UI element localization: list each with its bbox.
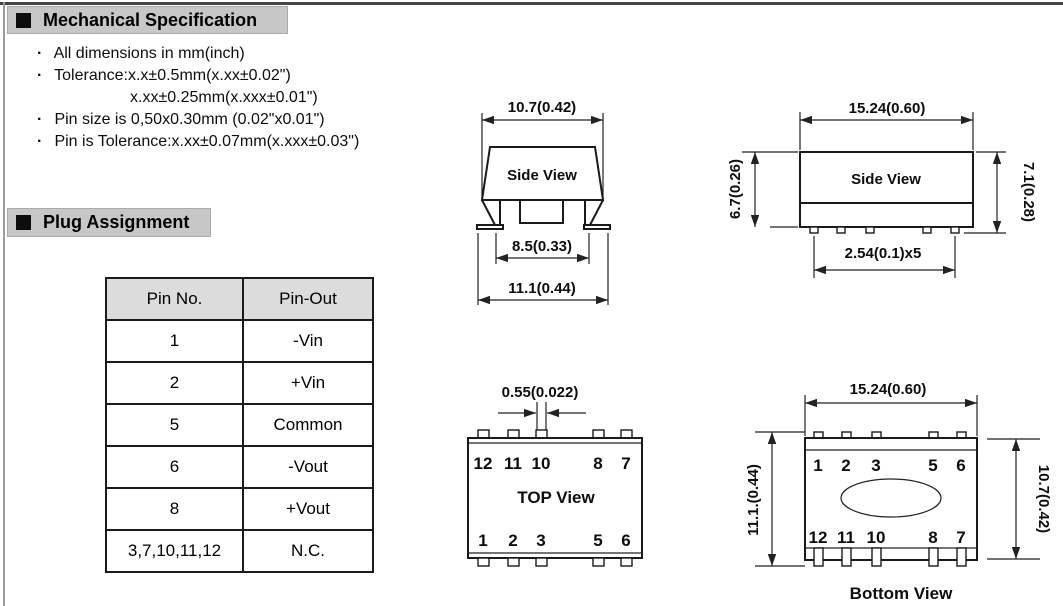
bullet-icon: · xyxy=(37,133,50,151)
svg-text:10: 10 xyxy=(867,528,886,547)
pin-assignment-table: Pin No. Pin-Out 1 -Vin 2 +Vin 5 Common 6… xyxy=(105,277,374,573)
svg-text:6: 6 xyxy=(956,456,965,475)
dim-body-height: 6.7(0.26) xyxy=(727,159,744,219)
column-header-pin-no: Pin No. xyxy=(106,278,243,320)
note-line: · Pin is Tolerance:x.xx±0.07mm(x.xxx±0.0… xyxy=(37,133,359,151)
drawing-side-view-front: 10.7(0.42) Side View 8.5(0.33) 11.1(0.44… xyxy=(440,90,650,320)
svg-text:6: 6 xyxy=(621,531,630,550)
datasheet-page: Mechanical Specification · All dimension… xyxy=(0,0,1063,606)
dim-body-height: 10.7(0.42) xyxy=(1035,465,1052,533)
section-header-mechanical-specification: Mechanical Specification xyxy=(7,6,288,34)
note-text: x.xx±0.25mm(x.xxx±0.01") xyxy=(130,89,318,106)
drawing-top-view: 0.55(0.022) 12 11 10 8 7 TOP View 1 2 xyxy=(440,375,690,603)
view-label: TOP View xyxy=(517,488,595,507)
pin-no-cell: 5 xyxy=(106,404,243,446)
dim-body-height-lines xyxy=(742,152,798,227)
table-row: 8 +Vout xyxy=(106,488,373,530)
dim-width: 15.24(0.60) xyxy=(850,381,927,398)
drawing-side-view-long: 15.24(0.60) Side View 6.7(0.26) 7.1(0.28… xyxy=(700,88,1063,284)
note-line: · Tolerance:x.x±0.5mm(x.xx±0.02") xyxy=(37,67,291,85)
svg-text:8: 8 xyxy=(928,528,937,547)
section-header-plug-assignment: Plug Assignment xyxy=(7,208,211,237)
dim-pin-width: 0.55(0.022) xyxy=(502,384,579,401)
dim-overall-height: 11.1.(0.44) xyxy=(745,464,762,536)
note-line: · All dimensions in mm(inch) xyxy=(37,45,245,63)
column-header-pin-out: Pin-Out xyxy=(243,278,373,320)
pin-out-cell: N.C. xyxy=(243,530,373,572)
section-square-icon xyxy=(16,13,31,28)
section-title: Plug Assignment xyxy=(43,212,189,233)
package-body xyxy=(800,152,973,227)
table-row: 1 -Vin xyxy=(106,320,373,362)
svg-text:1: 1 xyxy=(813,456,822,475)
svg-text:7: 7 xyxy=(621,454,630,473)
dim-pin-pitch: 2.54(0.1)x5 xyxy=(845,245,922,262)
dim-pin-width-lines xyxy=(498,402,586,432)
svg-text:3: 3 xyxy=(871,456,880,475)
bottom-row-pins xyxy=(478,558,632,566)
drawing-bottom-view: 15.24(0.60) 1 2 3 5 6 12 11 10 8 xyxy=(740,372,1063,606)
table-row: 3,7,10,11,12 N.C. xyxy=(106,530,373,572)
bullet-icon: · xyxy=(37,45,50,63)
svg-text:1: 1 xyxy=(478,531,487,550)
pin-no-cell: 6 xyxy=(106,446,243,488)
dim-overall-height-lines xyxy=(755,432,805,566)
table-row: 5 Common xyxy=(106,404,373,446)
dim-inner-width: 8.5(0.33) xyxy=(512,238,572,255)
note-line-continuation: x.xx±0.25mm(x.xxx±0.01") xyxy=(130,89,318,107)
note-text: Pin is Tolerance:x.xx±0.07mm(x.xxx±0.03"… xyxy=(54,133,359,150)
note-text: Tolerance:x.x±0.5mm(x.xx±0.02") xyxy=(54,67,291,84)
view-label: Side View xyxy=(851,171,921,188)
pin-out-cell: +Vin xyxy=(243,362,373,404)
page-border-left xyxy=(3,2,5,606)
dim-top-width: 10.7(0.42) xyxy=(508,99,576,116)
dim-width-lines xyxy=(805,395,977,436)
note-line: · Pin size is 0,50x0.30mm (0.02"x0.01") xyxy=(37,111,325,129)
table-row: 6 -Vout xyxy=(106,446,373,488)
package-legs xyxy=(477,200,610,229)
dim-overall-height: 7.1(0.28) xyxy=(1020,162,1037,222)
table-header-row: Pin No. Pin-Out xyxy=(106,278,373,320)
svg-text:8: 8 xyxy=(593,454,602,473)
svg-text:2: 2 xyxy=(841,456,850,475)
svg-text:12: 12 xyxy=(474,454,493,473)
svg-text:3: 3 xyxy=(536,531,545,550)
view-label: Side View xyxy=(507,167,577,184)
pin-no-cell: 3,7,10,11,12 xyxy=(106,530,243,572)
view-label: Bottom View xyxy=(850,584,953,603)
pin-out-cell: -Vin xyxy=(243,320,373,362)
bullet-icon: · xyxy=(37,111,50,129)
package-body xyxy=(805,438,977,560)
pin-out-cell: -Vout xyxy=(243,446,373,488)
svg-text:10: 10 xyxy=(532,454,551,473)
svg-text:2: 2 xyxy=(508,531,517,550)
svg-text:5: 5 xyxy=(593,531,602,550)
dim-width: 15.24(0.60) xyxy=(849,100,926,117)
svg-text:7: 7 xyxy=(956,528,965,547)
svg-text:11: 11 xyxy=(837,528,855,547)
bullet-icon: · xyxy=(37,67,50,85)
dim-width-lines xyxy=(800,112,973,150)
note-text: All dimensions in mm(inch) xyxy=(54,45,245,62)
dim-body-height-lines xyxy=(987,439,1040,559)
svg-text:5: 5 xyxy=(928,456,937,475)
pin-no-cell: 8 xyxy=(106,488,243,530)
page-border-top xyxy=(0,2,1063,5)
section-square-icon xyxy=(16,215,31,230)
svg-text:12: 12 xyxy=(809,528,828,547)
pin-out-cell: +Vout xyxy=(243,488,373,530)
dim-overall-width: 11.1(0.44) xyxy=(508,280,576,297)
note-text: Pin size is 0,50x0.30mm (0.02"x0.01") xyxy=(54,111,324,128)
pin-no-cell: 2 xyxy=(106,362,243,404)
svg-text:11: 11 xyxy=(504,454,522,473)
section-title: Mechanical Specification xyxy=(43,10,257,31)
pin-no-cell: 1 xyxy=(106,320,243,362)
table-row: 2 +Vin xyxy=(106,362,373,404)
top-row-pins xyxy=(478,430,632,438)
pin-out-cell: Common xyxy=(243,404,373,446)
